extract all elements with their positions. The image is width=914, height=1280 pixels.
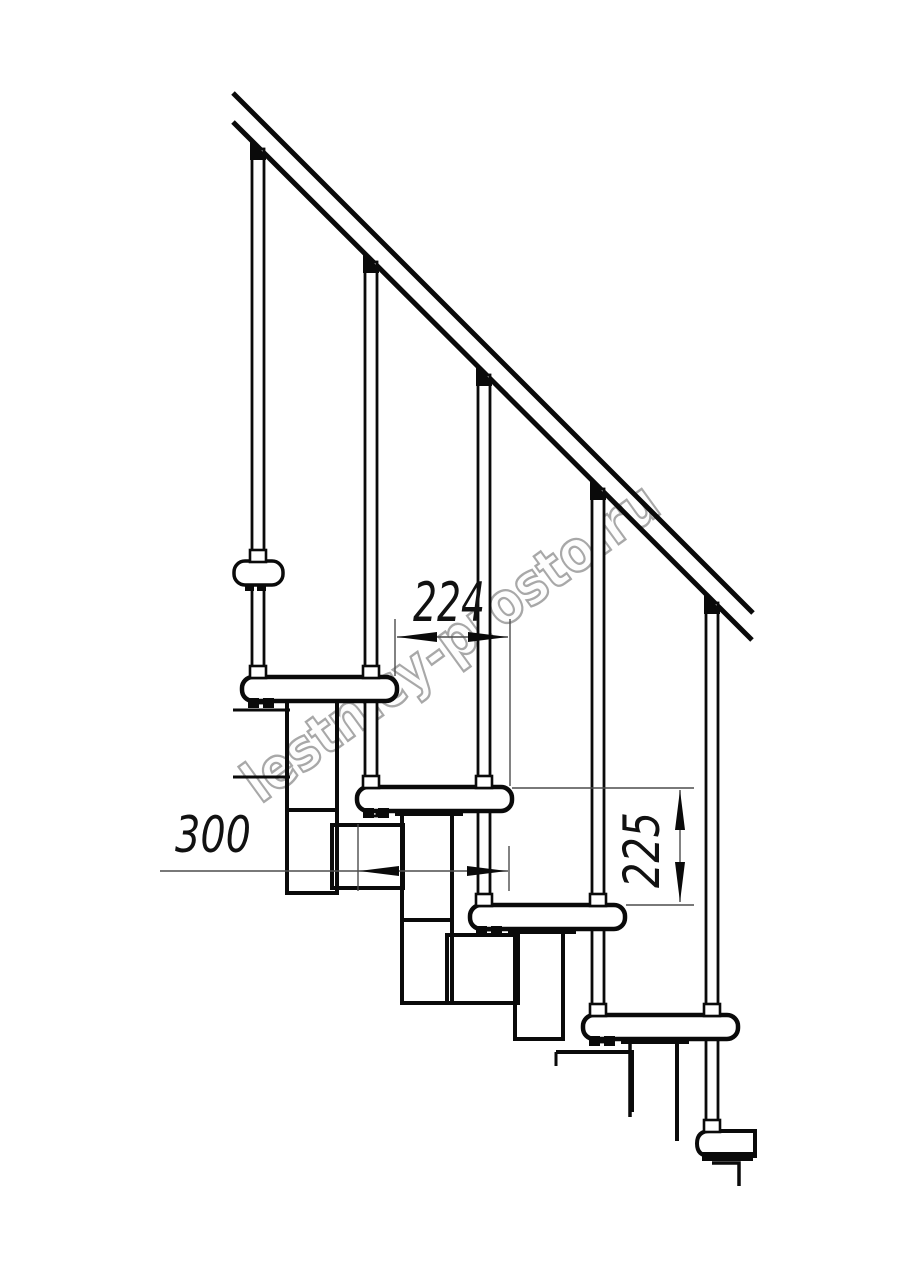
drawing-sheet: lestnicy-prosto.ru 224 300 225 [0, 0, 914, 1280]
watermark-layer: lestnicy-prosto.ru [230, 470, 672, 816]
baluster [252, 149, 264, 703]
baluster [478, 375, 490, 930]
tread [470, 905, 625, 929]
baluster [365, 262, 377, 816]
dimension-going-label: 224 [413, 571, 485, 634]
dimension-tread-depth-label: 300 [175, 806, 251, 864]
staircase-technical-drawing: lestnicy-prosto.ru 224 300 225 [0, 0, 914, 1280]
watermark-text: lestnicy-prosto.ru [230, 470, 672, 816]
tread [357, 787, 512, 811]
tread [242, 677, 397, 701]
baluster [592, 489, 604, 1042]
landing-cap [234, 561, 283, 591]
tread [583, 1015, 738, 1039]
baluster [706, 603, 718, 1156]
dimension-riser-height-label: 225 [613, 812, 671, 888]
handrail [233, 93, 753, 640]
